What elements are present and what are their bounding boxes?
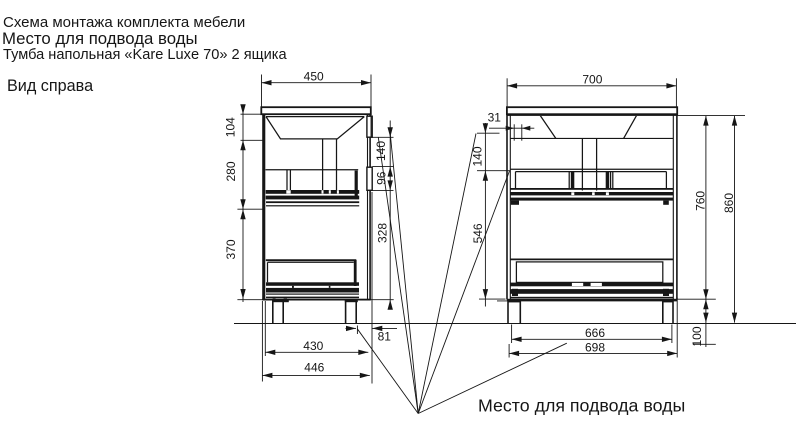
svg-text:31: 31 — [488, 110, 502, 124]
svg-text:666: 666 — [585, 326, 605, 340]
svg-text:81: 81 — [378, 330, 392, 344]
svg-text:Тумба напольная «Kare Luxe 70»: Тумба напольная «Kare Luxe 70» 2 ящика — [3, 47, 287, 63]
svg-text:Вид справа: Вид справа — [7, 77, 93, 95]
svg-text:760: 760 — [694, 191, 708, 211]
svg-text:430: 430 — [303, 339, 323, 353]
svg-text:104: 104 — [224, 117, 238, 137]
svg-text:100: 100 — [690, 326, 704, 346]
svg-text:96: 96 — [375, 171, 389, 185]
svg-text:140: 140 — [374, 141, 388, 161]
svg-text:370: 370 — [224, 239, 238, 259]
svg-text:140: 140 — [471, 146, 485, 166]
svg-text:546: 546 — [471, 223, 485, 243]
svg-text:328: 328 — [376, 223, 390, 243]
svg-text:450: 450 — [304, 69, 324, 83]
svg-text:280: 280 — [224, 161, 238, 181]
svg-text:700: 700 — [582, 72, 602, 86]
svg-text:698: 698 — [585, 341, 605, 355]
svg-text:Место для подвода воды: Место для подвода воды — [2, 29, 198, 48]
svg-text:446: 446 — [304, 360, 324, 374]
svg-text:860: 860 — [722, 193, 736, 213]
svg-text:Место для подвода воды: Место для подвода воды — [478, 396, 685, 416]
